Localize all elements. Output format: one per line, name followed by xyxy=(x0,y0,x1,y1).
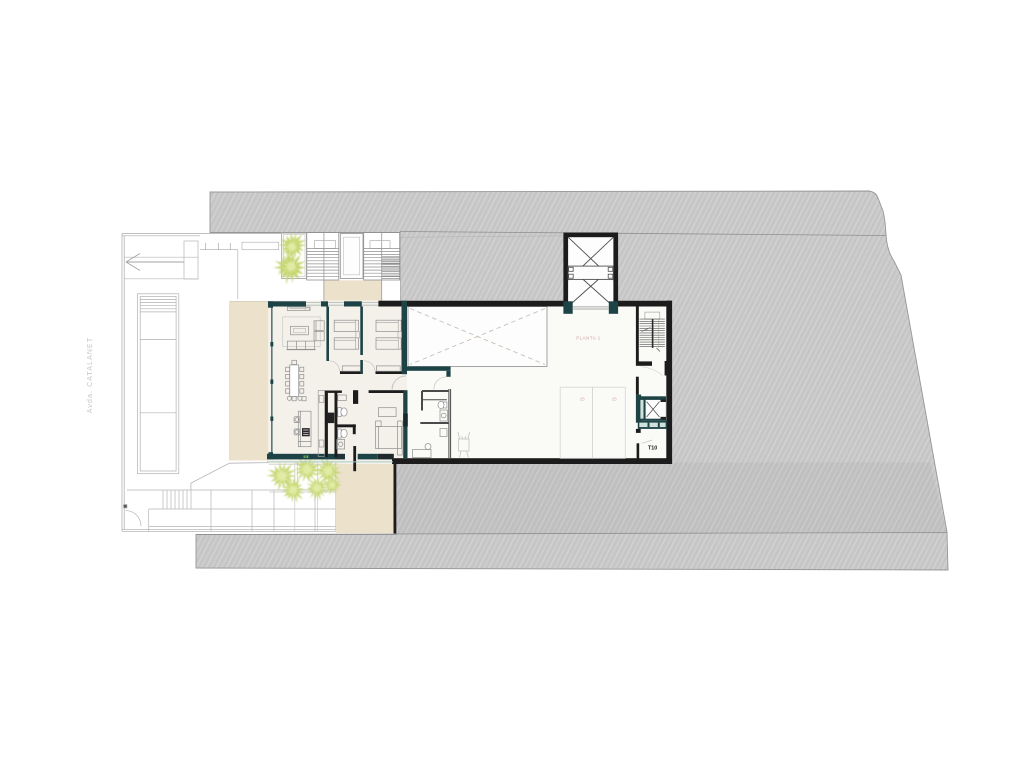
svg-text:25: 25 xyxy=(580,397,585,402)
svg-text:T10: T10 xyxy=(648,445,657,451)
svg-text:Avda. CATALANET: Avda. CATALANET xyxy=(87,337,94,413)
svg-text:PLANTA 1: PLANTA 1 xyxy=(576,335,601,340)
svg-text:25: 25 xyxy=(612,397,617,402)
